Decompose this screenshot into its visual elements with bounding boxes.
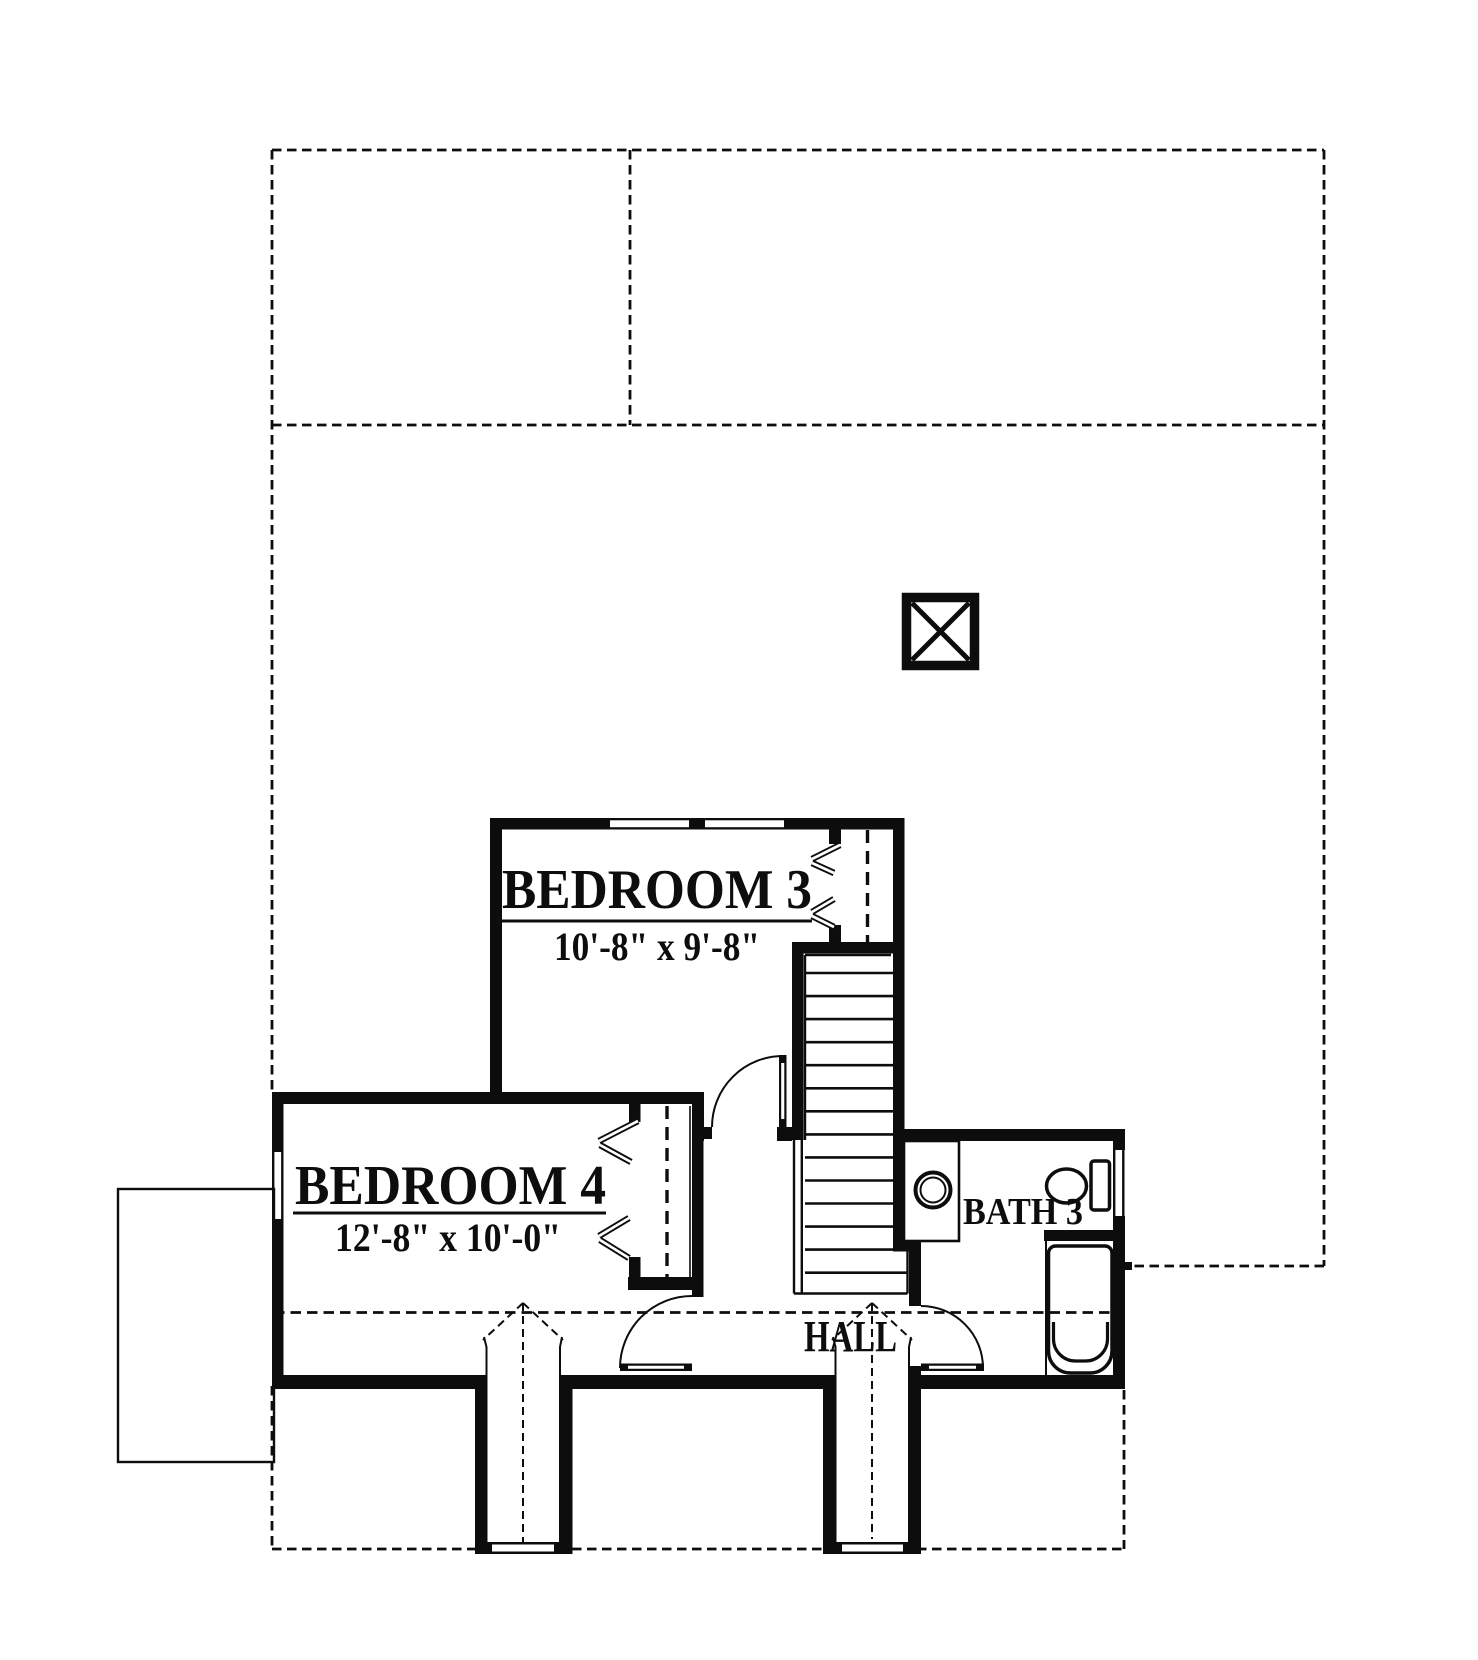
- svg-text:10'-8" x 9'-8": 10'-8" x 9'-8": [554, 924, 760, 969]
- svg-text:BEDROOM 3: BEDROOM 3: [502, 859, 812, 921]
- svg-text:BATH 3: BATH 3: [963, 1191, 1083, 1233]
- svg-text:BEDROOM 4: BEDROOM 4: [295, 1155, 606, 1217]
- svg-text:HALL: HALL: [804, 1312, 897, 1361]
- svg-text:12'-8" x 10'-0": 12'-8" x 10'-0": [335, 1215, 561, 1260]
